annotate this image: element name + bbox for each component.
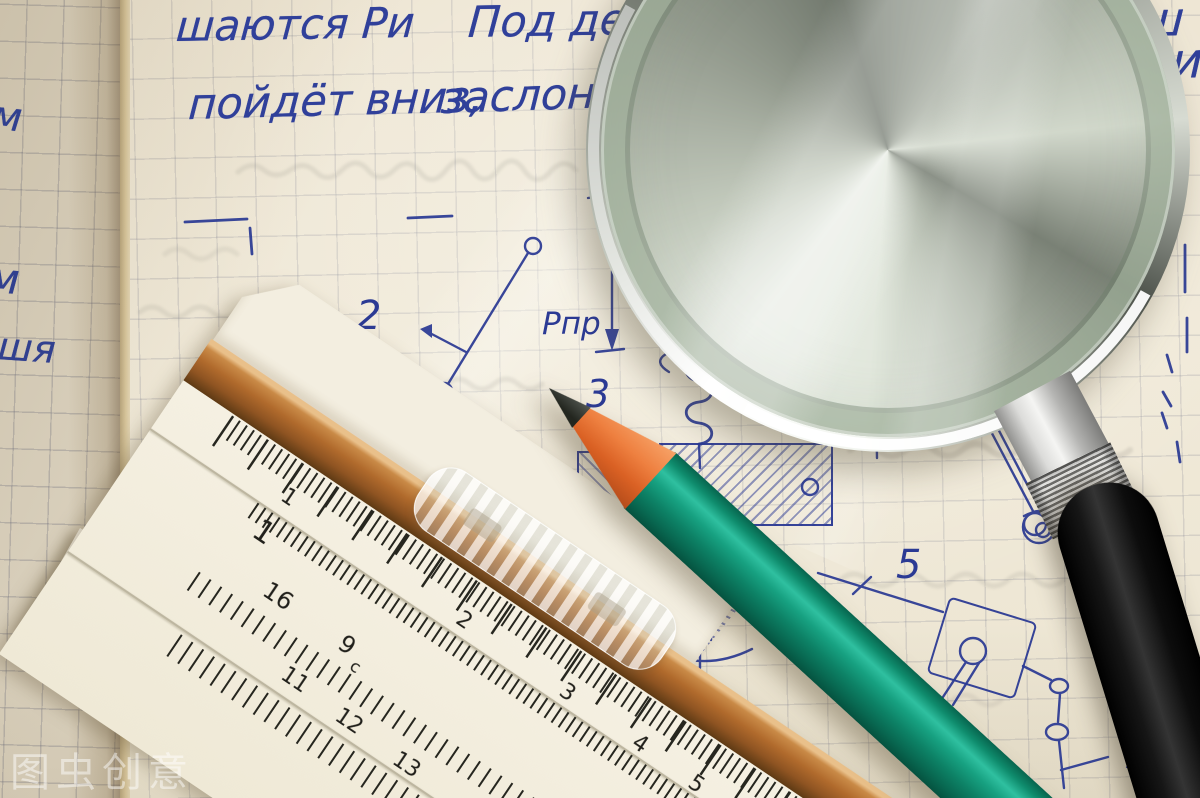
crystal-slot: [462, 507, 503, 544]
part5-label: 5: [896, 542, 921, 588]
photo-scene: шаются Ри Под действием пружины, ш пойдё…: [0, 0, 1200, 798]
crystal-slot: [586, 591, 627, 628]
slide-rule-number: 16: [258, 576, 299, 616]
watermark: 图虫创意: [10, 740, 194, 798]
spring-force-label: Рпр: [542, 306, 601, 342]
